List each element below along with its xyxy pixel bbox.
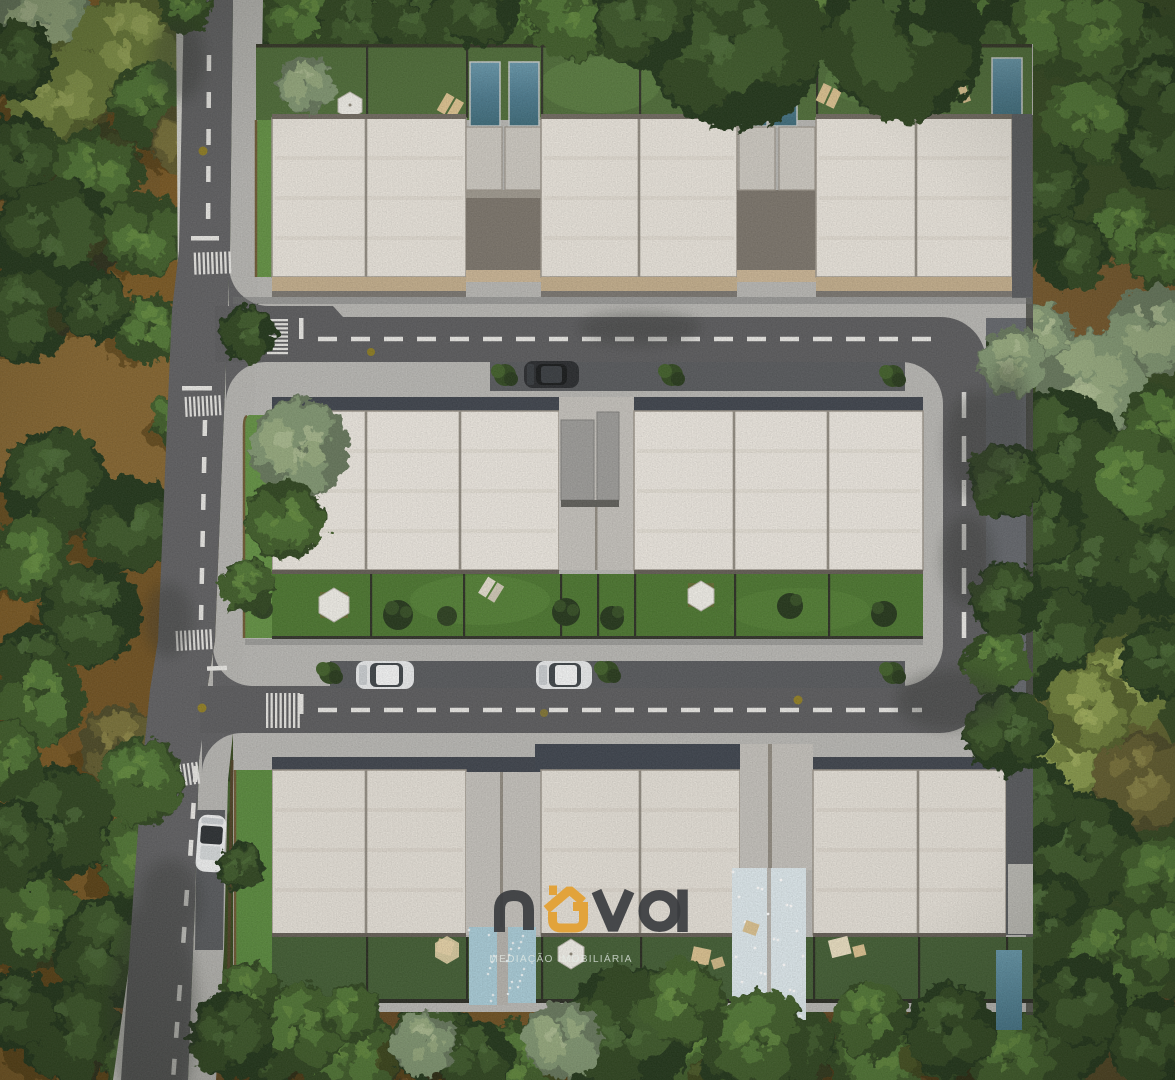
svg-text:MEDIAÇÃO IMOBILIÁRIA: MEDIAÇÃO IMOBILIÁRIA <box>489 952 632 965</box>
